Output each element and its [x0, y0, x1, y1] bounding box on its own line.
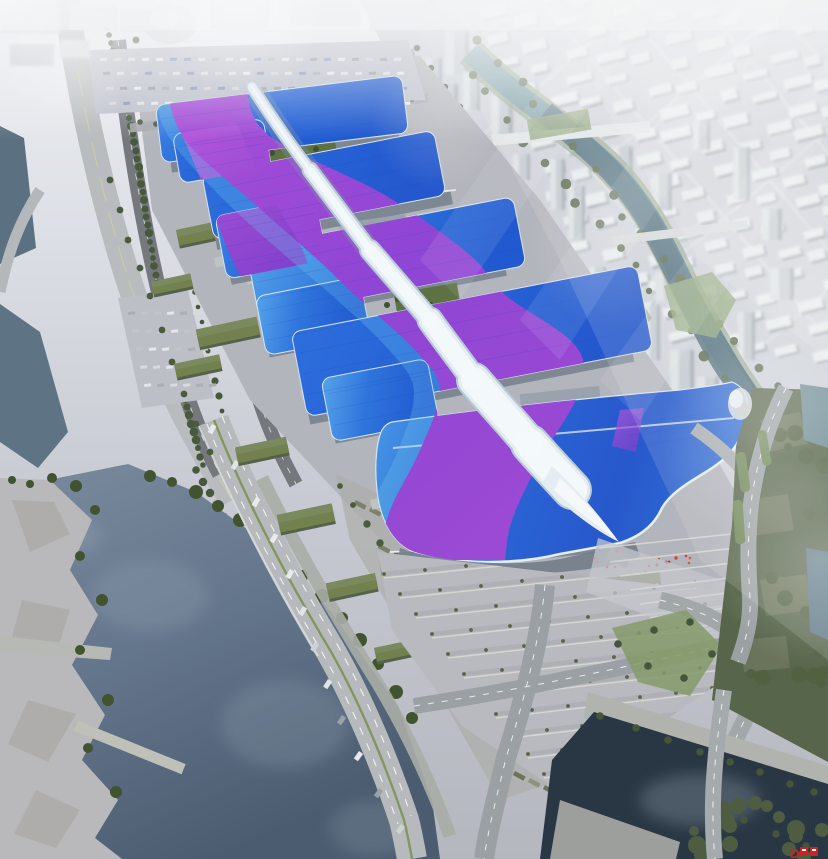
- svg-text:D: D: [790, 846, 799, 859]
